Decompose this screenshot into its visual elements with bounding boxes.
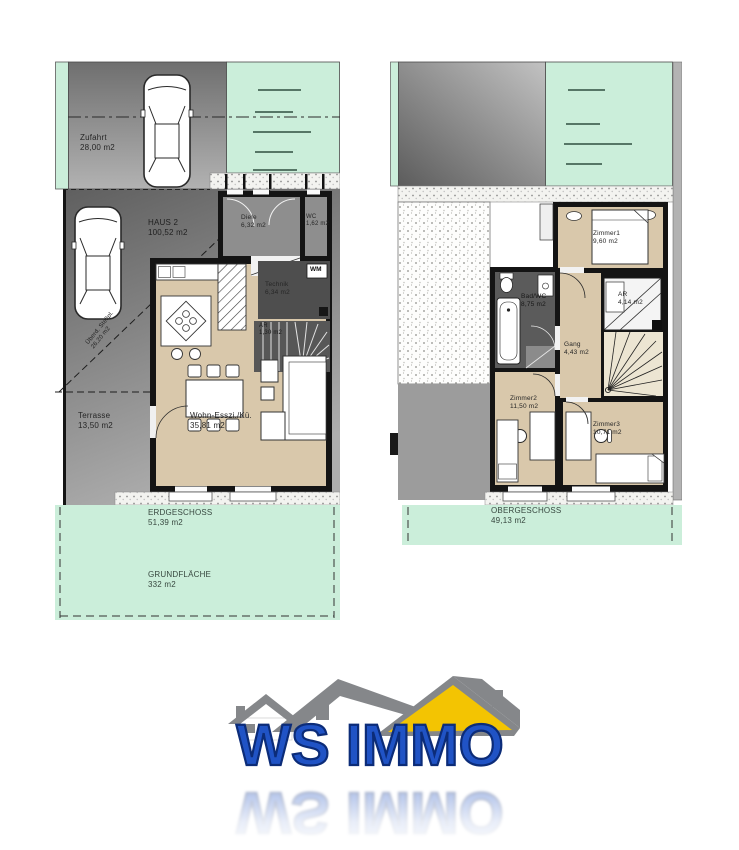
- haus-label: HAUS 2100,52 m2: [148, 218, 188, 238]
- bed-icon: [497, 420, 518, 482]
- diele-label: Diele6,32 m2: [241, 214, 266, 230]
- lawn-strip-left: [56, 62, 69, 189]
- bad-label: Bad/WC8,75 m2: [521, 293, 546, 309]
- stool-icon: [172, 349, 183, 360]
- neighbor-strip: [673, 62, 682, 500]
- wohnen-label: Wohn-Esszi./Kü.35,81 m2: [190, 411, 252, 431]
- zimmer2-label: Zimmer211,50 m2: [510, 395, 538, 411]
- bathtub-icon: [497, 298, 520, 364]
- technik-label: Technik6,34 m2: [265, 281, 290, 297]
- roof-block-zone: [399, 62, 546, 186]
- ws-immo-logo: WS IMMO WS IMMO: [210, 660, 530, 848]
- wc-label: WC1,62 m2: [306, 214, 329, 228]
- chimney-icon: [492, 690, 503, 707]
- zimmer3-label: Zimmer310,71 m2: [593, 421, 622, 437]
- zimmer1-label: Zimmer19,60 m2: [593, 230, 620, 246]
- terrasse-label: Terrasse13,50 m2: [78, 411, 113, 431]
- floorplan-sheet: Zufahrt28,00 m2 HAUS 2100,52 m2 Diele6,3…: [0, 0, 739, 850]
- grundflaeche-label: GRUNDFLÄCHE332 m2: [148, 570, 211, 590]
- upper-floor-plan: Zimmer19,60 m2 Bad/WC8,75 m2 AR4,14 m2 G…: [390, 60, 682, 545]
- zufahrt-label: Zufahrt28,00 m2: [80, 133, 115, 153]
- chimney-block: [540, 204, 553, 240]
- ground-floor-plan: Zufahrt28,00 m2 HAUS 2100,52 m2 Diele6,3…: [55, 60, 340, 620]
- garden-zone: [546, 62, 673, 186]
- logo-wordmark: WS IMMO: [210, 712, 530, 779]
- gravel-strip-bottom: [115, 492, 340, 505]
- sofa-icon: [261, 356, 326, 440]
- logo-reflection-fade: [210, 780, 530, 850]
- stipple-zone: [398, 202, 490, 384]
- erdgeschoss-label: ERDGESCHOSS51,39 m2: [148, 508, 212, 528]
- stool-icon: [190, 349, 201, 360]
- gang-room: [560, 273, 601, 398]
- carport-car-icon: [72, 207, 124, 319]
- bed-icon: [596, 454, 664, 483]
- obergeschoss-label: OBERGESCHOSS49,13 m2: [491, 506, 561, 526]
- stairs-icon: [604, 332, 663, 396]
- abstellraum-label: AR1,30 m2: [259, 323, 282, 337]
- gravel-strip-top: [210, 173, 340, 189]
- gray-zone: [398, 384, 490, 500]
- car-icon: [141, 75, 193, 187]
- lawn-sliver: [391, 62, 399, 186]
- gravel-strip-top: [398, 186, 673, 202]
- desk-icon: [530, 412, 555, 460]
- abstellraum-label: AR4,14 m2: [618, 291, 643, 307]
- wm-label: WM: [310, 266, 322, 273]
- gang-label: Gang4,43 m2: [564, 341, 589, 357]
- toilet-icon: [500, 273, 513, 293]
